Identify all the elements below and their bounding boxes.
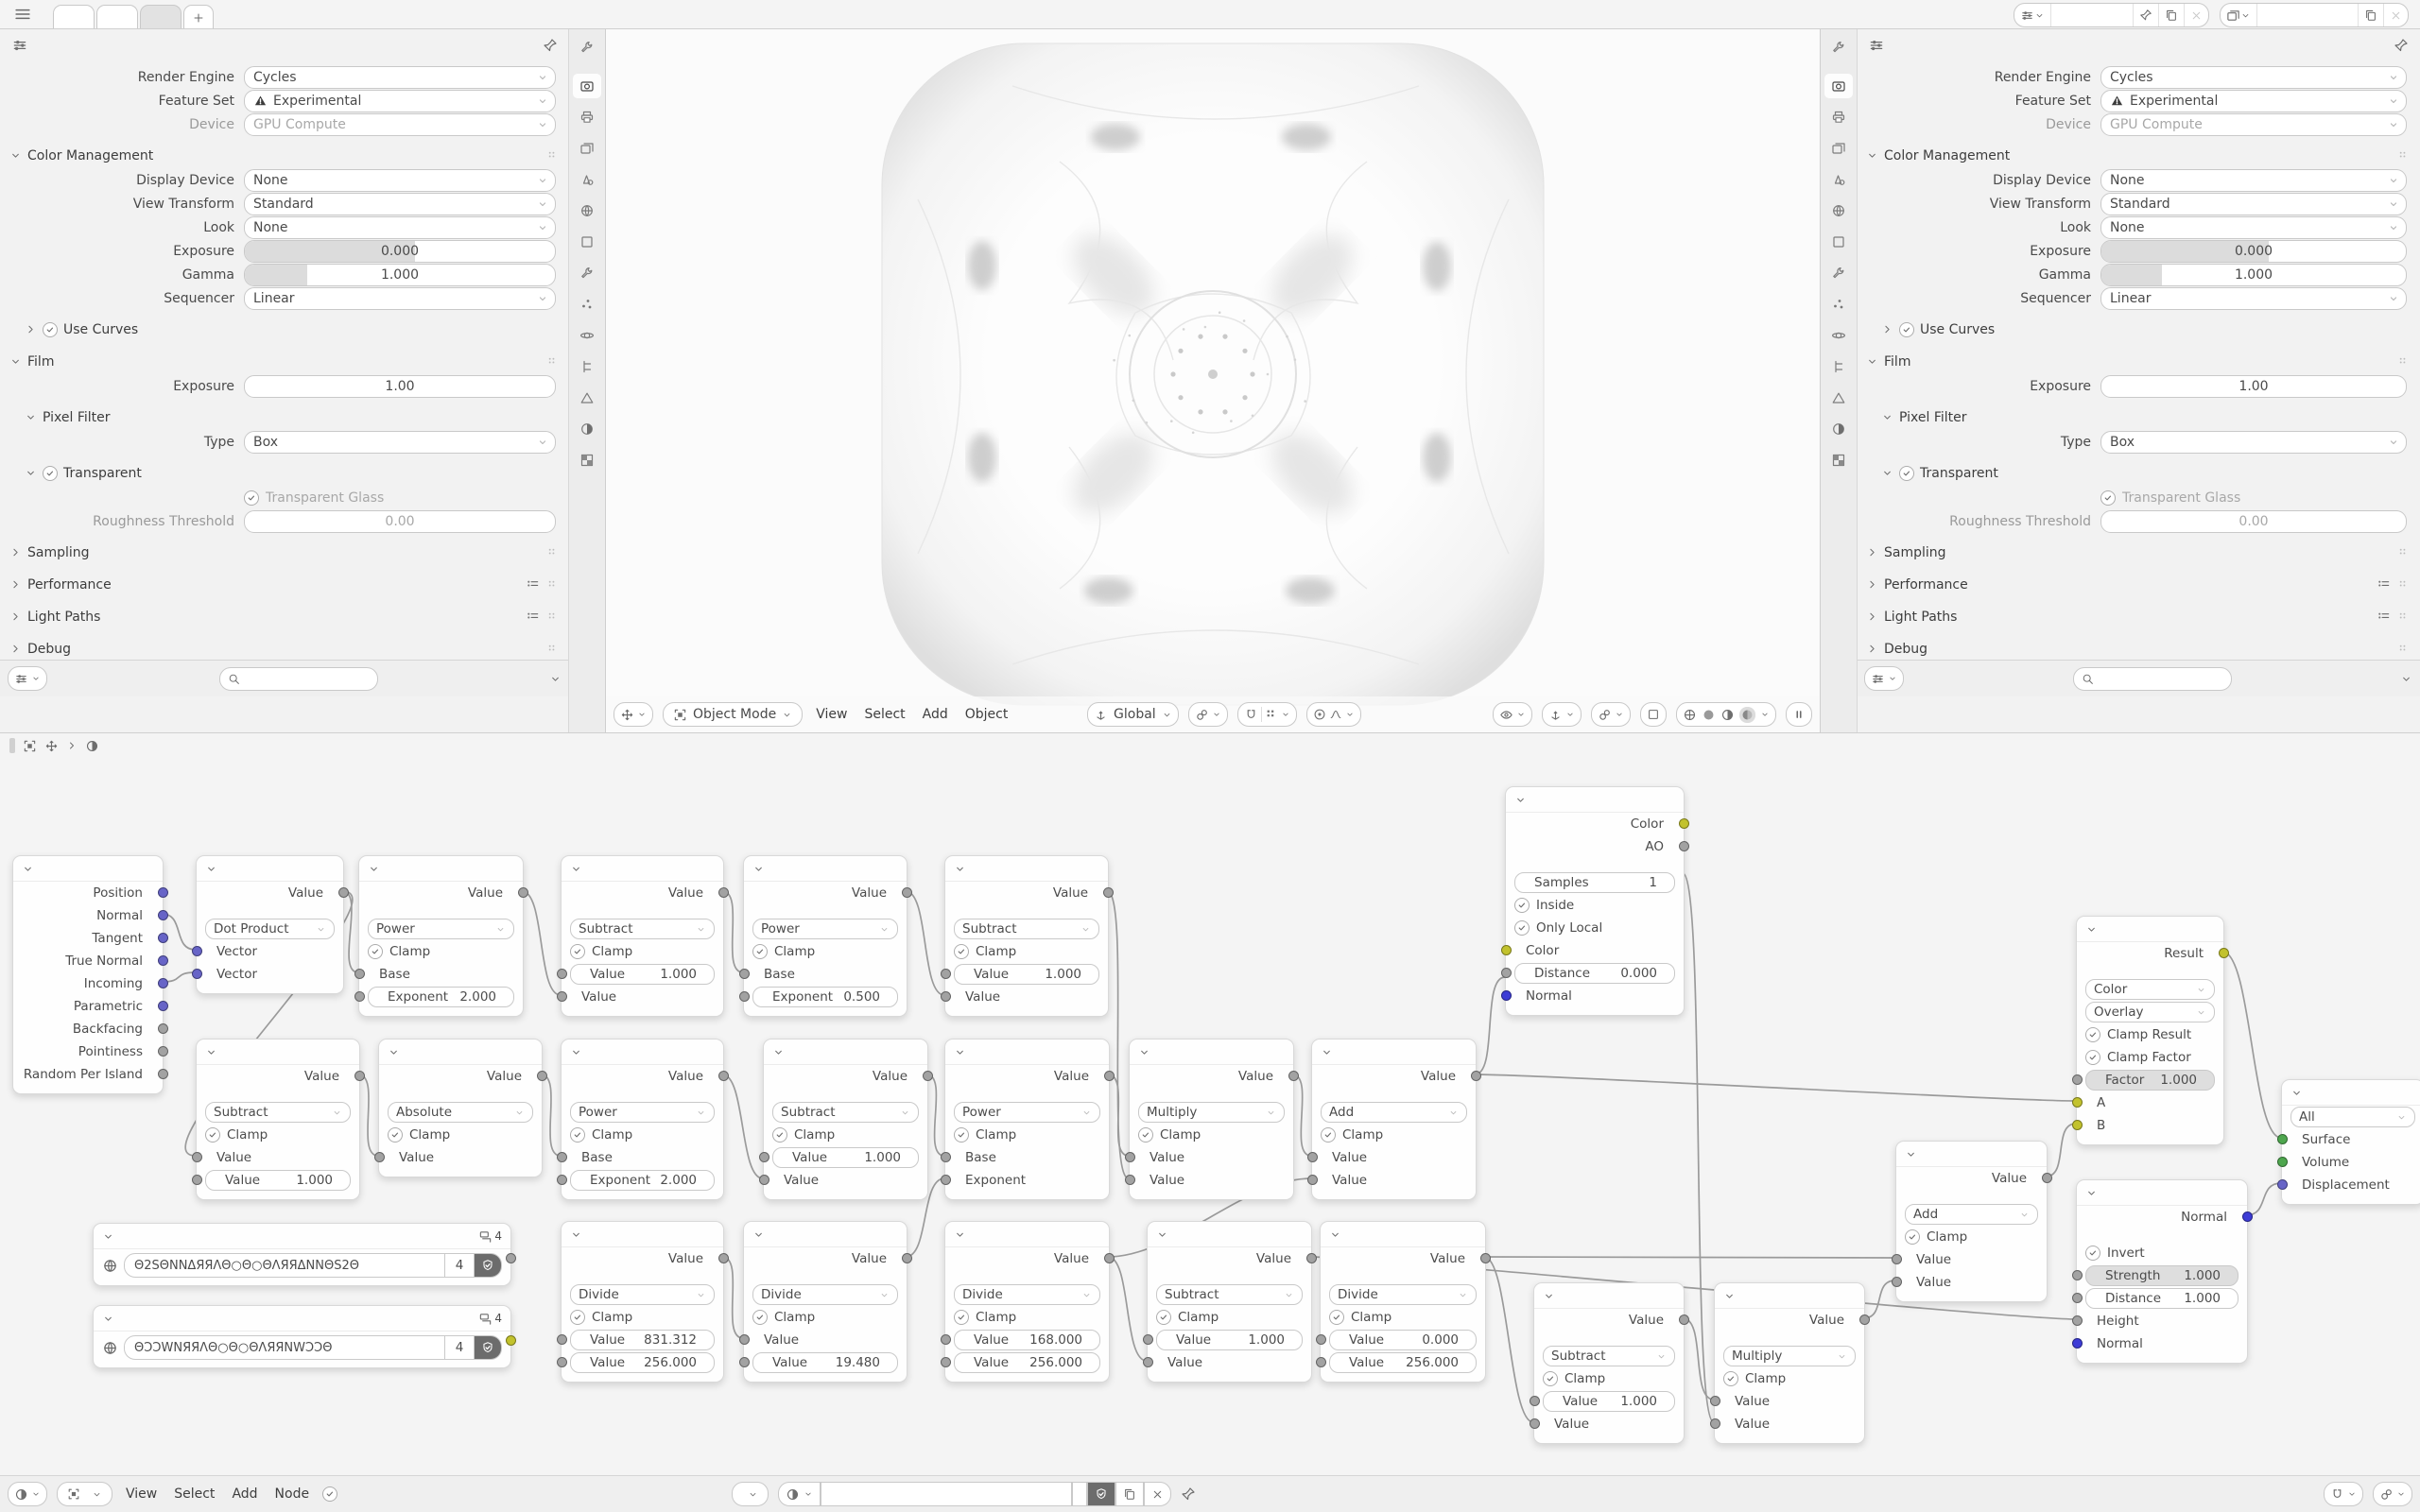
node-ambient-occlusion[interactable]: ColorAOSamples1InsideOnly LocalColorDist… xyxy=(1505,786,1685,1016)
input-socket-exponent[interactable] xyxy=(557,1175,567,1185)
node-field-exponent[interactable]: Exponent2.000 xyxy=(570,1170,715,1191)
editor-type-button[interactable] xyxy=(8,1482,47,1506)
region-grip[interactable] xyxy=(9,738,15,753)
input-socket-base[interactable] xyxy=(941,1152,951,1162)
section-color-management[interactable]: Color Management xyxy=(1857,143,2420,168)
node-math-multiply-2[interactable]: ValueMultiplyClampValueValue xyxy=(1714,1282,1865,1444)
node-select-power[interactable]: Power xyxy=(368,919,514,939)
output-socket-value[interactable] xyxy=(1306,1253,1317,1263)
options-chevron[interactable] xyxy=(549,673,562,685)
output-socket-value[interactable] xyxy=(1103,887,1114,898)
node-math-divide-4[interactable]: ValueDivideClampValue0.000Value256.000 xyxy=(1320,1221,1486,1383)
properties-tab-material[interactable] xyxy=(1824,417,1853,441)
properties-tab-texture[interactable] xyxy=(1824,448,1853,472)
node-header[interactable] xyxy=(1715,1283,1864,1309)
output-socket-random-per-island[interactable] xyxy=(158,1069,168,1079)
properties-tab-world[interactable] xyxy=(1824,198,1853,223)
input-socket-value[interactable] xyxy=(1143,1357,1153,1367)
node-header[interactable] xyxy=(2077,917,2223,942)
output-socket-value[interactable] xyxy=(338,887,349,898)
viewport-menu-add[interactable]: Add xyxy=(919,707,952,722)
scene-name-field[interactable] xyxy=(2050,4,2133,26)
node-header[interactable] xyxy=(945,1222,1109,1247)
input-socket-value[interactable] xyxy=(1125,1152,1135,1162)
section-light-paths[interactable]: Light Paths xyxy=(0,604,569,629)
checkbox-clamp[interactable] xyxy=(1723,1371,1738,1386)
node-select-power[interactable]: Power xyxy=(570,1102,715,1123)
properties-tab-material[interactable] xyxy=(573,417,601,441)
input-socket-value[interactable] xyxy=(557,1334,567,1345)
node-field-value[interactable]: Value1.000 xyxy=(1156,1330,1303,1350)
section-color-management[interactable]: Color Management xyxy=(0,143,569,168)
node-math-multiply-1[interactable]: ValueMultiplyClampValueValue xyxy=(1129,1039,1294,1200)
sequencer-select[interactable]: Linear xyxy=(244,287,556,310)
checkbox[interactable] xyxy=(43,466,58,481)
node-math-divide-2[interactable]: ValueDivideClampValueValue19.480 xyxy=(743,1221,907,1383)
checkbox-invert[interactable] xyxy=(2085,1246,2100,1261)
checkbox-clamp[interactable] xyxy=(368,944,383,959)
feature-set-select[interactable]: Experimental xyxy=(2100,90,2407,112)
node-field-value[interactable]: Value1.000 xyxy=(1543,1391,1675,1412)
input-socket-vector[interactable] xyxy=(192,946,202,956)
node-math-subtract-5[interactable]: ValueSubtractClampValue1.000Value xyxy=(1147,1221,1312,1383)
properties-tab-constraints[interactable] xyxy=(573,354,601,379)
output-socket-value[interactable] xyxy=(718,1253,729,1263)
node-header[interactable] xyxy=(1506,787,1684,813)
checkbox[interactable] xyxy=(43,322,58,337)
node-field-value[interactable]: Value256.000 xyxy=(954,1352,1100,1373)
input-socket-value[interactable] xyxy=(759,1175,769,1185)
xray-toggle[interactable] xyxy=(1640,702,1667,727)
properties-tab-particles[interactable] xyxy=(573,292,601,317)
render-engine-select[interactable]: Cycles xyxy=(244,66,556,89)
output-socket-position[interactable] xyxy=(158,887,168,898)
node-header[interactable] xyxy=(1534,1283,1684,1309)
node-field-value[interactable]: Value1.000 xyxy=(772,1147,919,1168)
output-socket-value[interactable] xyxy=(1859,1314,1870,1325)
node-header[interactable] xyxy=(945,856,1108,882)
input-socket-value[interactable] xyxy=(1143,1334,1153,1345)
section-pixel-filter[interactable]: Pixel Filter xyxy=(0,404,569,430)
input-socket-value[interactable] xyxy=(1892,1277,1902,1287)
checkbox-clamp[interactable] xyxy=(1543,1371,1558,1386)
search-input[interactable] xyxy=(219,667,378,691)
node-texture-2[interactable]: 4ΘƆƆWNЯЯΛΘ○Θ○ΘΛЯЯNWƆƆΘ4 xyxy=(93,1305,511,1368)
node-select-subtract[interactable]: Subtract xyxy=(205,1102,351,1123)
node-select-dot-product[interactable]: Dot Product xyxy=(205,919,335,939)
browse-image-button[interactable] xyxy=(102,1258,118,1274)
grip-icon[interactable] xyxy=(545,642,560,656)
input-socket-value[interactable] xyxy=(1316,1334,1326,1345)
snap-toggle[interactable] xyxy=(2324,1482,2363,1506)
output-socket-value[interactable] xyxy=(902,1253,912,1263)
checkbox-clamp[interactable] xyxy=(954,1127,969,1143)
display-device-select[interactable]: None xyxy=(2100,169,2407,192)
input-socket-value[interactable] xyxy=(557,969,567,979)
checkbox-clamp[interactable] xyxy=(1905,1229,1920,1245)
transparent-glass-checkbox[interactable]: Transparent Glass xyxy=(2100,490,2407,506)
node-math-subtract-6[interactable]: ValueSubtractClampValue1.000Value xyxy=(1533,1282,1685,1444)
node-header[interactable] xyxy=(379,1039,542,1065)
node-field-value[interactable]: Value831.312 xyxy=(570,1330,715,1350)
output-socket-backfacing[interactable] xyxy=(158,1023,168,1034)
node-header[interactable]: 4 xyxy=(94,1306,510,1332)
node-mix-color[interactable]: ResultColorOverlayClamp ResultClamp Fact… xyxy=(2076,916,2224,1145)
render-engine-select[interactable]: Cycles xyxy=(2100,66,2407,89)
section-transparent[interactable]: Transparent xyxy=(0,460,569,486)
output-socket-value[interactable] xyxy=(1104,1253,1115,1263)
output-socket-value[interactable] xyxy=(1480,1253,1491,1263)
input-socket-base[interactable] xyxy=(354,969,365,979)
visibility-dropdown[interactable] xyxy=(1493,702,1532,727)
scene-pin-button[interactable] xyxy=(2133,4,2158,26)
exposure-slider[interactable]: 1.00 xyxy=(244,375,556,398)
shader-type-select[interactable] xyxy=(57,1482,112,1506)
editor-type-icon[interactable] xyxy=(23,739,37,753)
node-header[interactable] xyxy=(562,1222,723,1247)
input-socket-value[interactable] xyxy=(941,991,951,1002)
properties-tab-modifiers[interactable] xyxy=(573,261,601,285)
texture-users-button[interactable]: 4 xyxy=(445,1335,475,1360)
checkbox-clamp[interactable] xyxy=(1138,1127,1153,1143)
output-socket-normal[interactable] xyxy=(2242,1211,2253,1222)
input-socket-value[interactable] xyxy=(739,1334,750,1345)
texture-users-button[interactable]: 4 xyxy=(445,1253,475,1278)
node-math-subtract-2[interactable]: ValueSubtractClampValue1.000Value xyxy=(944,855,1109,1017)
output-socket-value[interactable] xyxy=(1288,1071,1299,1081)
viewlayer-remove-button[interactable] xyxy=(2383,4,2408,26)
node-math-power-1[interactable]: ValuePowerClampBaseExponent2.000 xyxy=(358,855,524,1017)
pin-toggle[interactable] xyxy=(2394,38,2409,53)
node-header[interactable] xyxy=(359,856,523,882)
material-unlink-button[interactable] xyxy=(1144,1482,1171,1506)
properties-tab-physics[interactable] xyxy=(573,323,601,348)
output-socket-value[interactable] xyxy=(718,1071,729,1081)
checkbox-clamp[interactable] xyxy=(1156,1310,1171,1325)
material-name-field[interactable] xyxy=(821,1482,1072,1506)
exposure-slider[interactable]: 0.000 xyxy=(244,240,556,263)
properties-tab-tool[interactable] xyxy=(1824,35,1853,60)
node-math-subtract-1[interactable]: ValueSubtractClampValue1.000Value xyxy=(561,855,724,1017)
gizmos-dropdown[interactable] xyxy=(1542,702,1582,727)
material-browse-button[interactable] xyxy=(778,1482,821,1506)
checkbox-clamp[interactable] xyxy=(388,1127,403,1143)
input-socket-value[interactable] xyxy=(739,1357,750,1367)
checkbox-clamp[interactable] xyxy=(772,1127,787,1143)
pin-toggle[interactable] xyxy=(1181,1486,1196,1502)
input-socket-value[interactable] xyxy=(759,1152,769,1162)
node-select-add[interactable]: Add xyxy=(1321,1102,1467,1123)
use-nodes-checkbox[interactable] xyxy=(322,1486,343,1502)
output-socket-value[interactable] xyxy=(1679,1314,1689,1325)
checkbox-clamp-factor[interactable] xyxy=(2085,1050,2100,1065)
node-math-subtract-4[interactable]: ValueSubtractClampValue1.000Value xyxy=(763,1039,928,1200)
look-select[interactable]: None xyxy=(244,216,556,239)
output-socket-true-normal[interactable] xyxy=(158,955,168,966)
section-use-curves[interactable]: Use Curves xyxy=(1857,317,2420,342)
node-header[interactable] xyxy=(1312,1039,1476,1065)
node-menu-view[interactable]: View xyxy=(122,1486,161,1502)
section-sampling[interactable]: Sampling xyxy=(1857,540,2420,565)
device-select[interactable]: GPU Compute xyxy=(2100,113,2407,136)
editor-type-button[interactable] xyxy=(614,702,653,727)
node-field-samples[interactable]: Samples1 xyxy=(1514,872,1675,893)
section-transparent[interactable]: Transparent xyxy=(1857,460,2420,486)
texture-name-field[interactable]: ΘƆƆWNЯЯΛΘ○Θ○ΘΛЯЯNWƆƆΘ xyxy=(124,1335,445,1360)
checkbox-clamp[interactable] xyxy=(205,1127,220,1143)
input-socket-value[interactable] xyxy=(557,991,567,1002)
material-users-button[interactable] xyxy=(1072,1482,1087,1506)
node-select-overlay[interactable]: Overlay xyxy=(2085,1002,2215,1022)
node-math-absolute[interactable]: ValueAbsoluteClampValue xyxy=(378,1039,543,1177)
properties-tab-tool[interactable] xyxy=(573,35,601,60)
tool-icon[interactable] xyxy=(44,739,59,753)
input-socket-value[interactable] xyxy=(1530,1418,1540,1429)
node-field-value[interactable]: Value256.000 xyxy=(570,1352,715,1373)
viewport-3d[interactable]: Object ModeViewSelectAddObjectGlobal xyxy=(606,29,1820,732)
grip-icon[interactable] xyxy=(545,545,560,559)
checkbox-clamp[interactable] xyxy=(954,944,969,959)
checkbox-clamp[interactable] xyxy=(1329,1310,1344,1325)
properties-tab-object[interactable] xyxy=(1824,230,1853,254)
node-math-add-2[interactable]: ValueAddClampValueValue xyxy=(1895,1141,2048,1302)
editor-type-button[interactable] xyxy=(8,666,47,691)
workspace-tab-1[interactable] xyxy=(53,5,95,29)
node-math-add-1[interactable]: ValueAddClampValueValue xyxy=(1311,1039,1477,1200)
properties-tab-modifiers[interactable] xyxy=(1824,261,1853,285)
output-socket-normal[interactable] xyxy=(158,910,168,920)
input-socket-value[interactable] xyxy=(557,1357,567,1367)
output-socket-tangent[interactable] xyxy=(158,933,168,943)
input-socket-value[interactable] xyxy=(1125,1175,1135,1185)
sequencer-select[interactable]: Linear xyxy=(2100,287,2407,310)
pivot-select[interactable] xyxy=(1188,702,1228,727)
checkbox-clamp[interactable] xyxy=(752,944,768,959)
workspace-tab-3[interactable] xyxy=(140,5,181,29)
input-socket-value[interactable] xyxy=(192,1175,202,1185)
fake-user-toggle[interactable] xyxy=(475,1253,502,1278)
output-socket-parametric[interactable] xyxy=(158,1001,168,1011)
node-header[interactable] xyxy=(1896,1142,2047,1167)
add-workspace-button[interactable] xyxy=(183,5,214,30)
checkbox-clamp[interactable] xyxy=(1321,1127,1336,1143)
properties-tab-object-data[interactable] xyxy=(1824,386,1853,410)
node-header[interactable] xyxy=(197,856,343,882)
viewlayer-icon-button[interactable] xyxy=(2221,4,2256,26)
node-math-power-3[interactable]: ValuePowerClampBaseExponent2.000 xyxy=(561,1039,724,1200)
properties-tab-scene[interactable] xyxy=(1824,167,1853,192)
viewport-menu-select[interactable]: Select xyxy=(860,707,908,722)
node-header[interactable] xyxy=(1321,1222,1485,1247)
input-socket-normal[interactable] xyxy=(1501,990,1512,1001)
section-performance[interactable]: Performance xyxy=(0,572,569,597)
overlays-dropdown[interactable] xyxy=(1591,702,1631,727)
checkbox-inside[interactable] xyxy=(1514,898,1530,913)
node-math-power-2[interactable]: ValuePowerClampBaseExponent0.500 xyxy=(743,855,907,1017)
options-chevron[interactable] xyxy=(2400,673,2412,685)
node-geometry[interactable]: PositionNormalTangentTrue NormalIncoming… xyxy=(12,855,164,1094)
node-header[interactable] xyxy=(764,1039,927,1065)
input-socket-exponent[interactable] xyxy=(739,991,750,1002)
section-sampling[interactable]: Sampling xyxy=(0,540,569,565)
transparent-glass-checkbox[interactable]: Transparent Glass xyxy=(244,490,556,506)
node-field-strength[interactable]: Strength1.000 xyxy=(2085,1265,2238,1286)
type-select[interactable]: Box xyxy=(2100,431,2407,454)
node-select-power[interactable]: Power xyxy=(752,919,898,939)
workspace-tab-2[interactable] xyxy=(96,5,138,29)
node-math-divide-1[interactable]: ValueDivideClampValue831.312Value256.000 xyxy=(561,1221,724,1383)
exposure-slider[interactable]: 0.000 xyxy=(2100,240,2407,263)
node-canvas[interactable]: PositionNormalTangentTrue NormalIncoming… xyxy=(0,758,2420,1476)
output-socket-result[interactable] xyxy=(2219,948,2229,958)
grip-icon[interactable] xyxy=(2396,148,2411,163)
output-socket-value[interactable] xyxy=(1104,1071,1115,1081)
checkbox-clamp[interactable] xyxy=(570,1127,585,1143)
checkbox-clamp[interactable] xyxy=(570,1310,585,1325)
fake-user-toggle[interactable] xyxy=(475,1335,502,1360)
section-pixel-filter[interactable]: Pixel Filter xyxy=(1857,404,2420,430)
exposure-slider[interactable]: 1.00 xyxy=(2100,375,2407,398)
device-select[interactable]: GPU Compute xyxy=(244,113,556,136)
node-menu-node[interactable]: Node xyxy=(271,1486,314,1502)
section-performance[interactable]: Performance xyxy=(1857,572,2420,597)
input-socket-value[interactable] xyxy=(941,969,951,979)
viewlayer-copy-button[interactable] xyxy=(2358,4,2383,26)
section-film[interactable]: Film xyxy=(0,349,569,374)
grip-icon[interactable] xyxy=(545,610,560,624)
node-field-distance[interactable]: Distance0.000 xyxy=(1514,963,1675,984)
proportional-editing[interactable] xyxy=(1306,702,1361,727)
input-socket-exponent[interactable] xyxy=(354,991,365,1002)
grip-icon[interactable] xyxy=(545,354,560,369)
mode-select[interactable]: Object Mode xyxy=(663,702,803,727)
output-socket-value[interactable] xyxy=(2042,1173,2052,1183)
output-socket-value[interactable] xyxy=(718,887,729,898)
properties-tab-render[interactable] xyxy=(573,74,601,98)
node-header[interactable] xyxy=(2282,1080,2420,1106)
input-socket-base[interactable] xyxy=(557,1152,567,1162)
node-field-exponent[interactable]: Exponent2.000 xyxy=(368,987,514,1007)
overlays-toggle[interactable] xyxy=(2373,1482,2412,1506)
pin-toggle[interactable] xyxy=(543,38,558,53)
grip-icon[interactable] xyxy=(545,577,560,592)
checkbox-clamp[interactable] xyxy=(954,1310,969,1325)
properties-tab-object-data[interactable] xyxy=(573,386,601,410)
node-menu-select[interactable]: Select xyxy=(170,1486,218,1502)
output-socket-color[interactable] xyxy=(1679,818,1689,829)
input-socket-value[interactable] xyxy=(1307,1152,1318,1162)
node-select-divide[interactable]: Divide xyxy=(752,1284,898,1305)
checkbox[interactable] xyxy=(1899,322,1914,337)
properties-tab-scene[interactable] xyxy=(573,167,601,192)
node-field-distance[interactable]: Distance1.000 xyxy=(2085,1288,2238,1309)
node-texture-1[interactable]: 4Θ2SΘNNΔЯЯΛΘ○Θ○ΘΛЯЯΔNNΘS2Θ4 xyxy=(93,1223,511,1286)
node-select-subtract[interactable]: Subtract xyxy=(954,919,1099,939)
node-header[interactable] xyxy=(13,856,163,882)
grip-icon[interactable] xyxy=(2396,610,2411,624)
input-socket-value[interactable] xyxy=(1316,1357,1326,1367)
section-debug[interactable]: Debug xyxy=(1857,636,2420,661)
view-transform-select[interactable]: Standard xyxy=(2100,193,2407,215)
input-socket-value[interactable] xyxy=(192,1152,202,1162)
properties-tab-world[interactable] xyxy=(573,198,601,223)
node-select-divide[interactable]: Divide xyxy=(1329,1284,1477,1305)
node-select-absolute[interactable]: Absolute xyxy=(388,1102,533,1123)
grip-icon[interactable] xyxy=(545,148,560,163)
output-socket[interactable] xyxy=(506,1335,516,1346)
output-socket-value[interactable] xyxy=(537,1071,547,1081)
grip-icon[interactable] xyxy=(2396,642,2411,656)
node-field-value[interactable]: Value1.000 xyxy=(954,964,1099,985)
node-header[interactable] xyxy=(2077,1180,2247,1206)
node-field-exponent[interactable]: Exponent0.500 xyxy=(752,987,898,1007)
output-socket-value[interactable] xyxy=(354,1071,365,1081)
node-header[interactable] xyxy=(1148,1222,1311,1247)
texture-name-field[interactable]: Θ2SΘNNΔЯЯΛΘ○Θ○ΘΛЯЯΔNNΘS2Θ xyxy=(124,1253,445,1278)
input-socket-distance[interactable] xyxy=(1501,968,1512,978)
roughness-threshold-slider[interactable]: 0.00 xyxy=(2100,510,2407,533)
node-field-value[interactable]: Value1.000 xyxy=(205,1170,351,1191)
editor-type-button[interactable] xyxy=(1864,666,1904,691)
checkbox-only-local[interactable] xyxy=(1514,920,1530,936)
node-select-subtract[interactable]: Subtract xyxy=(1156,1284,1303,1305)
checkbox-clamp[interactable] xyxy=(752,1310,768,1325)
output-socket-value[interactable] xyxy=(1471,1071,1481,1081)
node-select-divide[interactable]: Divide xyxy=(954,1284,1100,1305)
scene-copy-button[interactable] xyxy=(2158,4,2184,26)
section-film[interactable]: Film xyxy=(1857,349,2420,374)
input-socket-value[interactable] xyxy=(1710,1396,1720,1406)
node-math-divide-3[interactable]: ValueDivideClampValue168.000Value256.000 xyxy=(944,1221,1110,1383)
shader-node-editor[interactable]: PositionNormalTangentTrue NormalIncoming… xyxy=(0,733,2420,1512)
feature-set-select[interactable]: Experimental xyxy=(244,90,556,112)
input-socket-value[interactable] xyxy=(1710,1418,1720,1429)
orientation-select[interactable]: Global xyxy=(1087,702,1179,727)
section-light-paths[interactable]: Light Paths xyxy=(1857,604,2420,629)
input-socket-value[interactable] xyxy=(1307,1175,1318,1185)
node-menu-add[interactable]: Add xyxy=(228,1486,261,1502)
viewport-menu-object[interactable]: Object xyxy=(961,707,1012,722)
input-socket-normal[interactable] xyxy=(2072,1338,2083,1349)
shading-modes[interactable] xyxy=(1676,702,1776,727)
output-socket-incoming[interactable] xyxy=(158,978,168,988)
input-socket-distance[interactable] xyxy=(2072,1293,2083,1303)
viewport-menu-view[interactable]: View xyxy=(812,707,851,722)
node-field-value[interactable]: Value19.480 xyxy=(752,1352,898,1373)
input-socket-exponent[interactable] xyxy=(941,1175,951,1185)
node-select-color[interactable]: Color xyxy=(2085,979,2215,1000)
view-transform-select[interactable]: Standard xyxy=(244,193,556,215)
input-socket-displacement[interactable] xyxy=(2277,1179,2288,1190)
node-select-subtract[interactable]: Subtract xyxy=(570,919,715,939)
node-material-output[interactable]: AllSurfaceVolumeDisplacement xyxy=(2281,1079,2420,1205)
scene-selector[interactable] xyxy=(2014,3,2209,27)
snap-toggle[interactable] xyxy=(1237,702,1297,727)
node-header[interactable] xyxy=(744,1222,907,1247)
input-socket-b[interactable] xyxy=(2072,1120,2083,1130)
checkbox[interactable] xyxy=(1899,466,1914,481)
material-new-button[interactable] xyxy=(1115,1482,1144,1506)
node-bump[interactable]: NormalInvertStrength1.000Distance1.000He… xyxy=(2076,1179,2248,1364)
input-socket-value[interactable] xyxy=(941,1357,951,1367)
scene-unlink-button[interactable] xyxy=(2184,4,2208,26)
section-use-curves[interactable]: Use Curves xyxy=(0,317,569,342)
node-header[interactable] xyxy=(744,856,907,882)
input-socket-vector[interactable] xyxy=(192,969,202,979)
output-socket-value[interactable] xyxy=(902,887,912,898)
node-header[interactable] xyxy=(1130,1039,1293,1065)
app-menu-button[interactable] xyxy=(13,5,32,24)
